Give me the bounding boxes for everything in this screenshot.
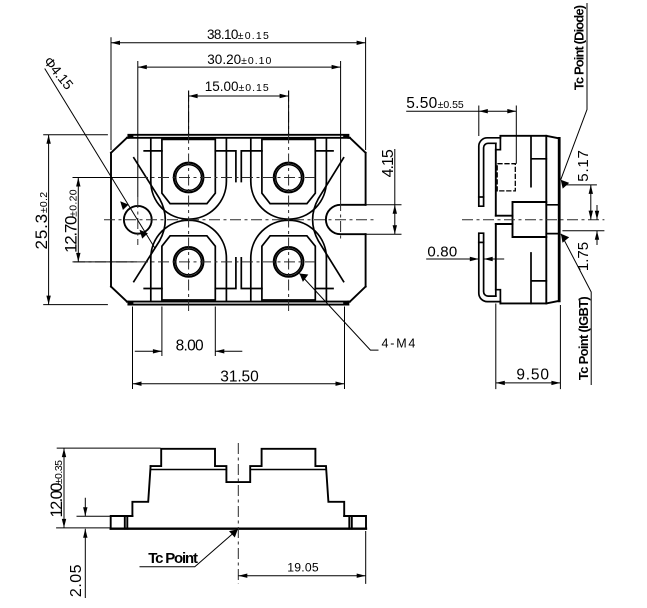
svg-text:38.10±0.15: 38.10±0.15 xyxy=(207,27,270,42)
svg-text:Tc Point (Diode): Tc Point (Diode) xyxy=(572,5,587,90)
svg-text:31.50: 31.50 xyxy=(220,369,259,386)
svg-text:19.05: 19.05 xyxy=(287,561,319,575)
svg-text:4-M4: 4-M4 xyxy=(382,337,418,351)
svg-text:15.00±0.15: 15.00±0.15 xyxy=(205,79,270,94)
svg-text:0.80: 0.80 xyxy=(427,244,457,261)
svg-text:8.00: 8.00 xyxy=(176,337,204,354)
svg-text:4.15: 4.15 xyxy=(380,149,397,177)
svg-text:5.17: 5.17 xyxy=(575,149,592,181)
svg-text:1.75: 1.75 xyxy=(575,242,592,271)
svg-text:Tc Point (IGBT): Tc Point (IGBT) xyxy=(576,297,591,381)
svg-text:Tc Point: Tc Point xyxy=(148,550,198,567)
svg-text:2.05: 2.05 xyxy=(68,564,85,597)
svg-text:9.50: 9.50 xyxy=(516,367,549,384)
svg-text:30.20±0.10: 30.20±0.10 xyxy=(207,52,272,67)
